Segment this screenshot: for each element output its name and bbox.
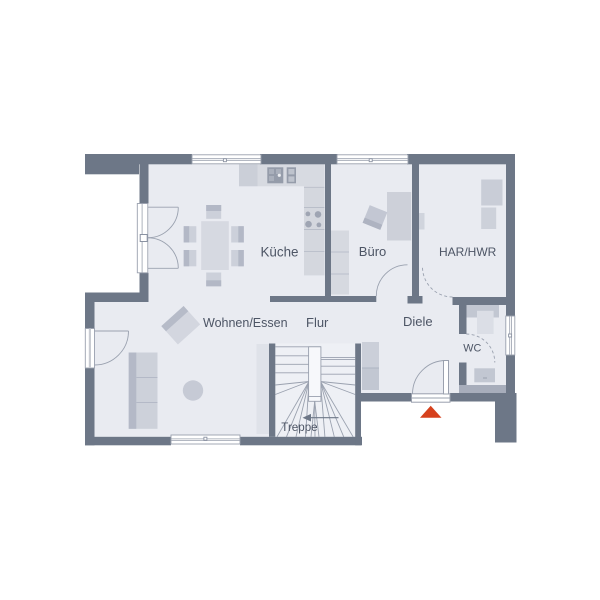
- svg-text:Wohnen/Essen: Wohnen/Essen: [203, 316, 288, 330]
- svg-text:Küche: Küche: [261, 245, 299, 260]
- svg-text:Büro: Büro: [359, 244, 386, 259]
- svg-text:Treppe: Treppe: [281, 421, 317, 434]
- svg-text:Diele: Diele: [403, 314, 433, 329]
- svg-text:WC: WC: [463, 343, 481, 355]
- svg-text:HAR/HWR: HAR/HWR: [439, 245, 497, 259]
- svg-text:Flur: Flur: [306, 315, 329, 330]
